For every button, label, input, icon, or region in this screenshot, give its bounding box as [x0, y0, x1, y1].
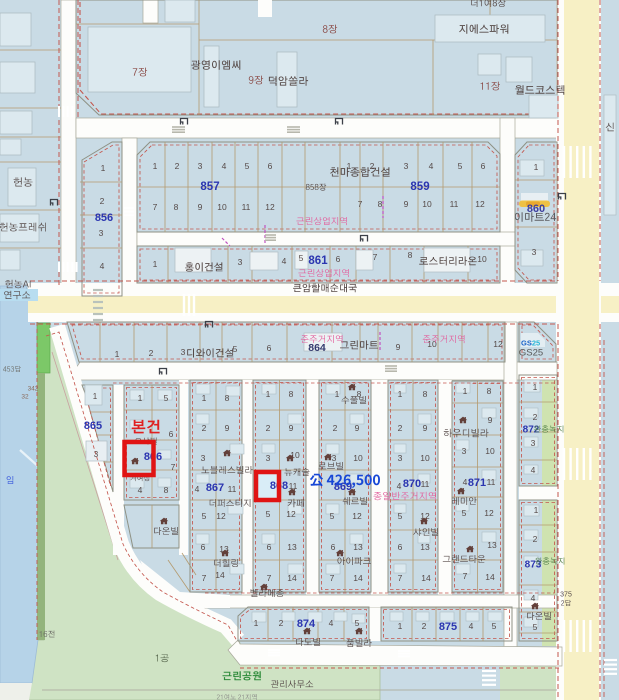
svg-text:871: 871 [468, 477, 486, 489]
svg-text:10: 10 [485, 446, 495, 456]
svg-text:5: 5 [492, 621, 497, 631]
svg-text:3: 3 [532, 247, 537, 257]
svg-text:3: 3 [332, 453, 337, 463]
svg-text:342: 342 [28, 385, 39, 392]
svg-text:7: 7 [373, 252, 378, 262]
svg-text:1: 1 [138, 393, 143, 403]
svg-text:11: 11 [487, 477, 496, 487]
svg-text:1: 1 [115, 349, 120, 359]
svg-text:12: 12 [216, 511, 226, 521]
svg-text:12: 12 [352, 511, 362, 521]
svg-text:2: 2 [279, 618, 284, 628]
svg-text:7: 7 [330, 573, 335, 583]
svg-text:1: 1 [153, 259, 158, 269]
svg-text:32: 32 [21, 393, 29, 400]
svg-text:9: 9 [225, 423, 230, 433]
svg-text:4: 4 [138, 485, 143, 495]
svg-text:6: 6 [331, 542, 336, 552]
svg-text:5: 5 [202, 511, 207, 521]
svg-text:9: 9 [198, 202, 203, 212]
svg-text:GS25: GS25 [519, 347, 543, 358]
svg-text:5: 5 [398, 511, 403, 521]
svg-text:12: 12 [286, 509, 296, 519]
svg-text:6: 6 [398, 542, 403, 552]
svg-text:859: 859 [410, 181, 429, 193]
svg-text:3: 3 [462, 446, 467, 456]
svg-text:12: 12 [265, 202, 275, 212]
svg-text:2: 2 [149, 348, 154, 358]
svg-text:6: 6 [268, 161, 273, 171]
svg-text:8: 8 [423, 389, 428, 399]
svg-text:1: 1 [398, 389, 403, 399]
svg-text:2: 2 [100, 196, 105, 206]
svg-text:7: 7 [398, 573, 403, 583]
svg-text:1: 1 [101, 163, 106, 173]
svg-text:6: 6 [201, 542, 206, 552]
svg-text:1: 1 [534, 505, 539, 515]
svg-text:5: 5 [533, 622, 538, 632]
svg-text:6: 6 [267, 343, 272, 353]
svg-text:4: 4 [222, 161, 227, 171]
svg-text:4: 4 [195, 484, 200, 494]
svg-text:9: 9 [488, 415, 493, 425]
svg-text:12: 12 [475, 199, 485, 209]
svg-text:12: 12 [493, 339, 503, 349]
svg-text:3: 3 [94, 450, 99, 459]
svg-text:3: 3 [398, 453, 403, 463]
svg-text:5: 5 [266, 509, 271, 519]
svg-text:2: 2 [398, 423, 403, 433]
svg-text:8: 8 [225, 393, 230, 403]
svg-text:3: 3 [198, 161, 203, 171]
svg-text:7: 7 [202, 573, 207, 583]
svg-text:8: 8 [289, 389, 294, 399]
svg-text:1: 1 [202, 393, 207, 403]
svg-text:867: 867 [206, 482, 224, 494]
svg-text:4: 4 [531, 593, 536, 603]
svg-text:7: 7 [358, 199, 363, 209]
svg-text:865: 865 [84, 420, 102, 432]
svg-text:2: 2 [533, 412, 538, 422]
svg-text:2: 2 [333, 423, 338, 433]
svg-text:11: 11 [228, 484, 237, 494]
svg-text:8: 8 [164, 485, 169, 495]
svg-text:14: 14 [287, 573, 297, 583]
svg-text:5: 5 [164, 393, 169, 403]
svg-text:8: 8 [378, 199, 383, 209]
svg-text:10: 10 [217, 202, 227, 212]
svg-text:3: 3 [266, 453, 271, 463]
svg-text:4: 4 [469, 621, 474, 631]
svg-text:11: 11 [450, 199, 459, 209]
svg-text:3: 3 [238, 257, 243, 267]
svg-text:6: 6 [267, 542, 272, 552]
svg-text:5: 5 [299, 253, 304, 263]
svg-text:14: 14 [421, 573, 431, 583]
svg-text:8: 8 [408, 250, 413, 260]
svg-text:7: 7 [267, 573, 272, 583]
svg-text:5: 5 [458, 161, 463, 171]
svg-text:9: 9 [404, 199, 409, 209]
svg-text:9: 9 [423, 423, 428, 433]
svg-text:861: 861 [308, 255, 328, 267]
svg-text:3: 3 [201, 453, 206, 463]
svg-text:4: 4 [282, 256, 287, 266]
svg-text:1: 1 [266, 389, 271, 399]
svg-text:870: 870 [403, 478, 421, 490]
svg-text:1: 1 [254, 618, 259, 628]
svg-text:4: 4 [329, 618, 334, 628]
svg-text:9: 9 [355, 423, 360, 433]
svg-text:6: 6 [481, 161, 486, 171]
svg-text:12: 12 [484, 508, 494, 518]
svg-text:2: 2 [202, 423, 207, 433]
svg-text:3: 3 [404, 161, 409, 171]
svg-text:2: 2 [370, 161, 375, 171]
svg-text:5: 5 [233, 344, 238, 354]
svg-text:GS25: GS25 [521, 339, 540, 348]
svg-text:2: 2 [422, 621, 427, 631]
svg-text:6: 6 [169, 429, 174, 439]
svg-text:857: 857 [200, 181, 219, 193]
svg-text:856: 856 [95, 212, 113, 224]
svg-text:1: 1 [93, 392, 98, 401]
svg-text:7: 7 [463, 571, 468, 581]
svg-text:864: 864 [308, 342, 326, 354]
svg-text:6: 6 [336, 254, 341, 264]
svg-text:8: 8 [487, 386, 492, 396]
svg-text:4: 4 [429, 161, 434, 171]
svg-text:2: 2 [533, 534, 538, 544]
svg-text:9: 9 [396, 342, 401, 352]
svg-text:5: 5 [330, 511, 335, 521]
svg-text:10: 10 [420, 453, 430, 463]
svg-text:1: 1 [398, 621, 403, 631]
svg-text:11: 11 [421, 479, 430, 489]
svg-text:1: 1 [533, 382, 538, 392]
svg-text:5: 5 [355, 618, 360, 628]
svg-text:10: 10 [477, 254, 487, 264]
svg-text:1: 1 [335, 389, 340, 399]
svg-text:3: 3 [531, 438, 536, 448]
svg-text:11: 11 [242, 202, 251, 212]
svg-text:5: 5 [462, 508, 467, 518]
svg-text:375: 375 [560, 592, 572, 599]
svg-text:13: 13 [287, 542, 297, 552]
svg-text:1: 1 [534, 162, 539, 172]
svg-text:5: 5 [245, 161, 250, 171]
svg-text:7: 7 [153, 202, 158, 212]
svg-text:14: 14 [353, 573, 363, 583]
svg-text:1: 1 [153, 161, 158, 171]
svg-text:13: 13 [487, 540, 497, 550]
svg-text:13: 13 [353, 542, 363, 552]
svg-text:2: 2 [266, 423, 271, 433]
svg-text:13: 13 [420, 542, 430, 552]
svg-text:7: 7 [171, 462, 176, 472]
svg-text:8: 8 [174, 202, 179, 212]
svg-text:10: 10 [353, 453, 363, 463]
svg-text:2: 2 [175, 161, 180, 171]
svg-text:4: 4 [397, 481, 402, 491]
svg-text:875: 875 [439, 621, 457, 633]
svg-text:1: 1 [347, 161, 352, 171]
svg-text:3: 3 [181, 347, 186, 357]
svg-text:1: 1 [463, 386, 468, 396]
svg-text:9: 9 [289, 423, 294, 433]
svg-text:14: 14 [485, 572, 495, 582]
svg-text:3: 3 [99, 228, 104, 238]
svg-text:10: 10 [422, 199, 432, 209]
svg-text:4: 4 [100, 261, 105, 271]
svg-text:4: 4 [531, 465, 536, 475]
svg-text:14: 14 [215, 570, 225, 580]
